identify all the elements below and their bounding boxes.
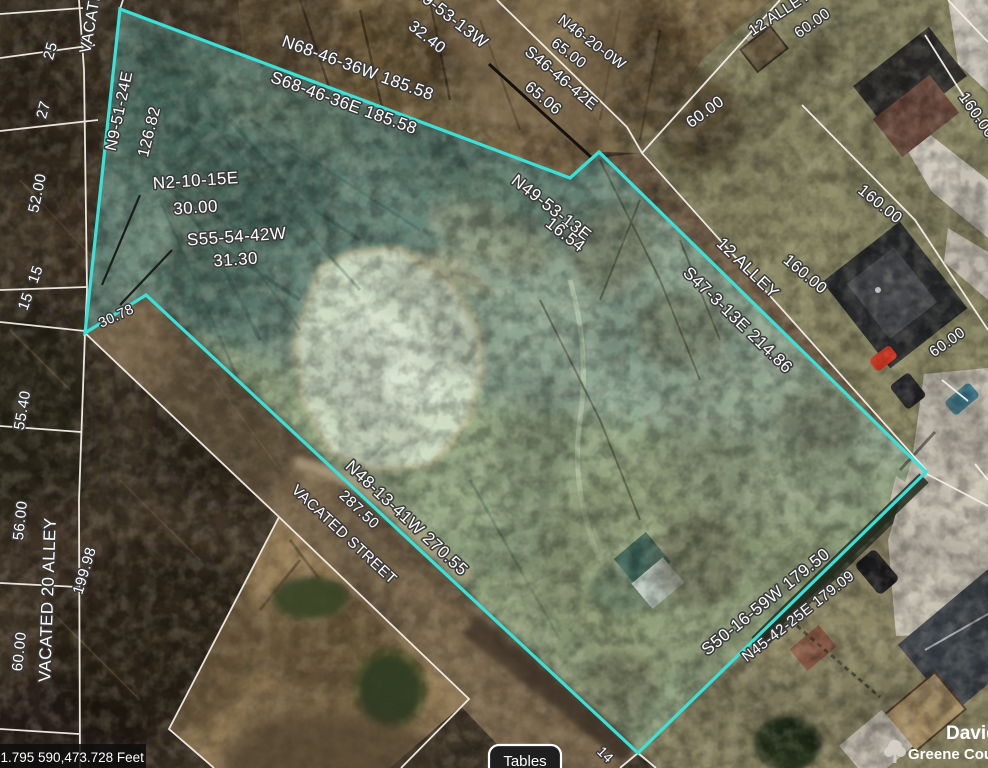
svg-text:30.00: 30.00 (173, 196, 219, 218)
svg-text:Tables: Tables (503, 753, 546, 768)
svg-text:91.795 590,473.728 Feet: 91.795 590,473.728 Feet (0, 750, 144, 765)
svg-text:31.30: 31.30 (213, 248, 259, 270)
svg-text:David: David (946, 723, 988, 744)
svg-text:Greene Coun: Greene Coun (908, 746, 988, 763)
